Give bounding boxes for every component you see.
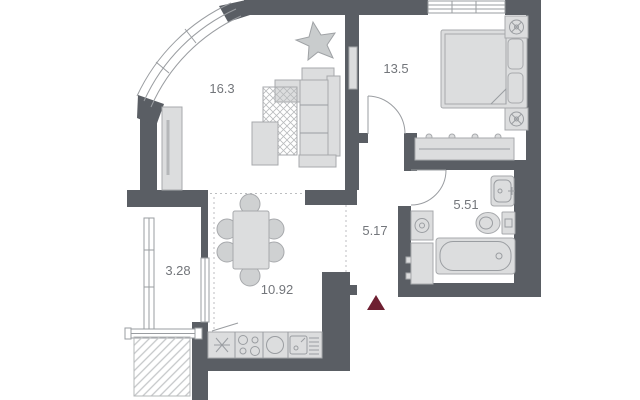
bathroom-door: [411, 170, 446, 205]
counter-flap-line: [212, 323, 238, 331]
wall-entry-vertical: [322, 272, 350, 368]
wardrobe: [415, 134, 514, 160]
bathtub-icon: [436, 238, 515, 274]
dining-set: [217, 194, 284, 286]
wall-top: [244, 0, 428, 15]
washing-machine-icon: [411, 211, 433, 240]
balcony-door: [201, 258, 209, 322]
entrance-marker-icon: [367, 295, 385, 310]
plant-icon: [296, 22, 335, 60]
washbasin-icon: [491, 176, 515, 206]
tv-icon: [167, 120, 170, 175]
wall-living-bottom-left: [127, 190, 208, 207]
pillow: [508, 39, 523, 69]
kitchen-counter: [208, 323, 322, 358]
nightstand-top: [505, 16, 528, 38]
room-label-hallway: 5.17: [362, 223, 387, 238]
floor-plan-canvas: 16.3 13.5 5.51 5.17 10.92 3.28: [0, 0, 640, 400]
wall-right: [526, 0, 541, 297]
nightstand-bottom: [505, 108, 528, 130]
bedroom-door: [368, 96, 405, 134]
room-label-living: 16.3: [209, 81, 234, 96]
wall-living-bottom-right: [305, 190, 357, 205]
wall-bedroom-bathroom: [404, 160, 514, 170]
wall-stub-bedroom-door: [358, 133, 368, 143]
pillow: [508, 73, 523, 103]
floor-plan: 16.3 13.5 5.51 5.17 10.92 3.28: [0, 0, 640, 400]
room-label-balcony: 3.28: [165, 263, 190, 278]
balcony-side-window: [144, 218, 154, 330]
room-label-bedroom: 13.5: [383, 61, 408, 76]
wall-bath-duct: [514, 160, 526, 297]
tv-cabinet: [162, 107, 182, 190]
bed: [441, 30, 527, 108]
bedroom-window: [428, 1, 505, 13]
open-balcony-hatch: [134, 337, 190, 396]
wall-tv-icon: [349, 47, 357, 89]
coffee-table: [252, 122, 278, 165]
toilet-icon: [476, 212, 515, 234]
dining-table: [233, 211, 269, 269]
wall-living-bedroom: [345, 15, 359, 190]
wall-entry-stub: [350, 285, 357, 295]
room-label-kitchen-dining: 10.92: [261, 282, 294, 297]
wall-bathroom-bottom: [398, 283, 541, 297]
wall-balcony-right-upper: [201, 205, 208, 258]
room-label-bathroom: 5.51: [453, 197, 478, 212]
